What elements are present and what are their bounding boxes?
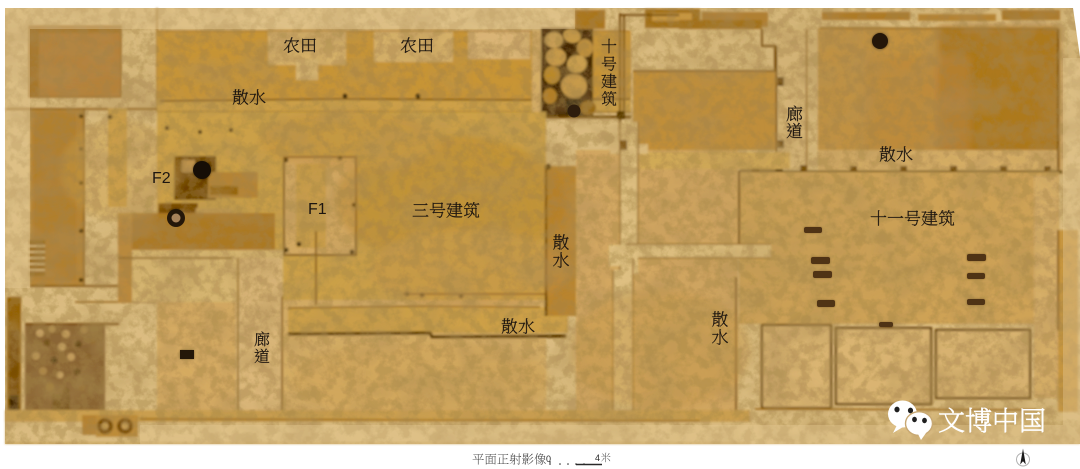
svg-text:F2: F2: [152, 170, 171, 187]
svg-text:F1: F1: [308, 201, 327, 218]
svg-text:4: 4: [595, 453, 600, 463]
svg-text:0: 0: [546, 454, 551, 464]
